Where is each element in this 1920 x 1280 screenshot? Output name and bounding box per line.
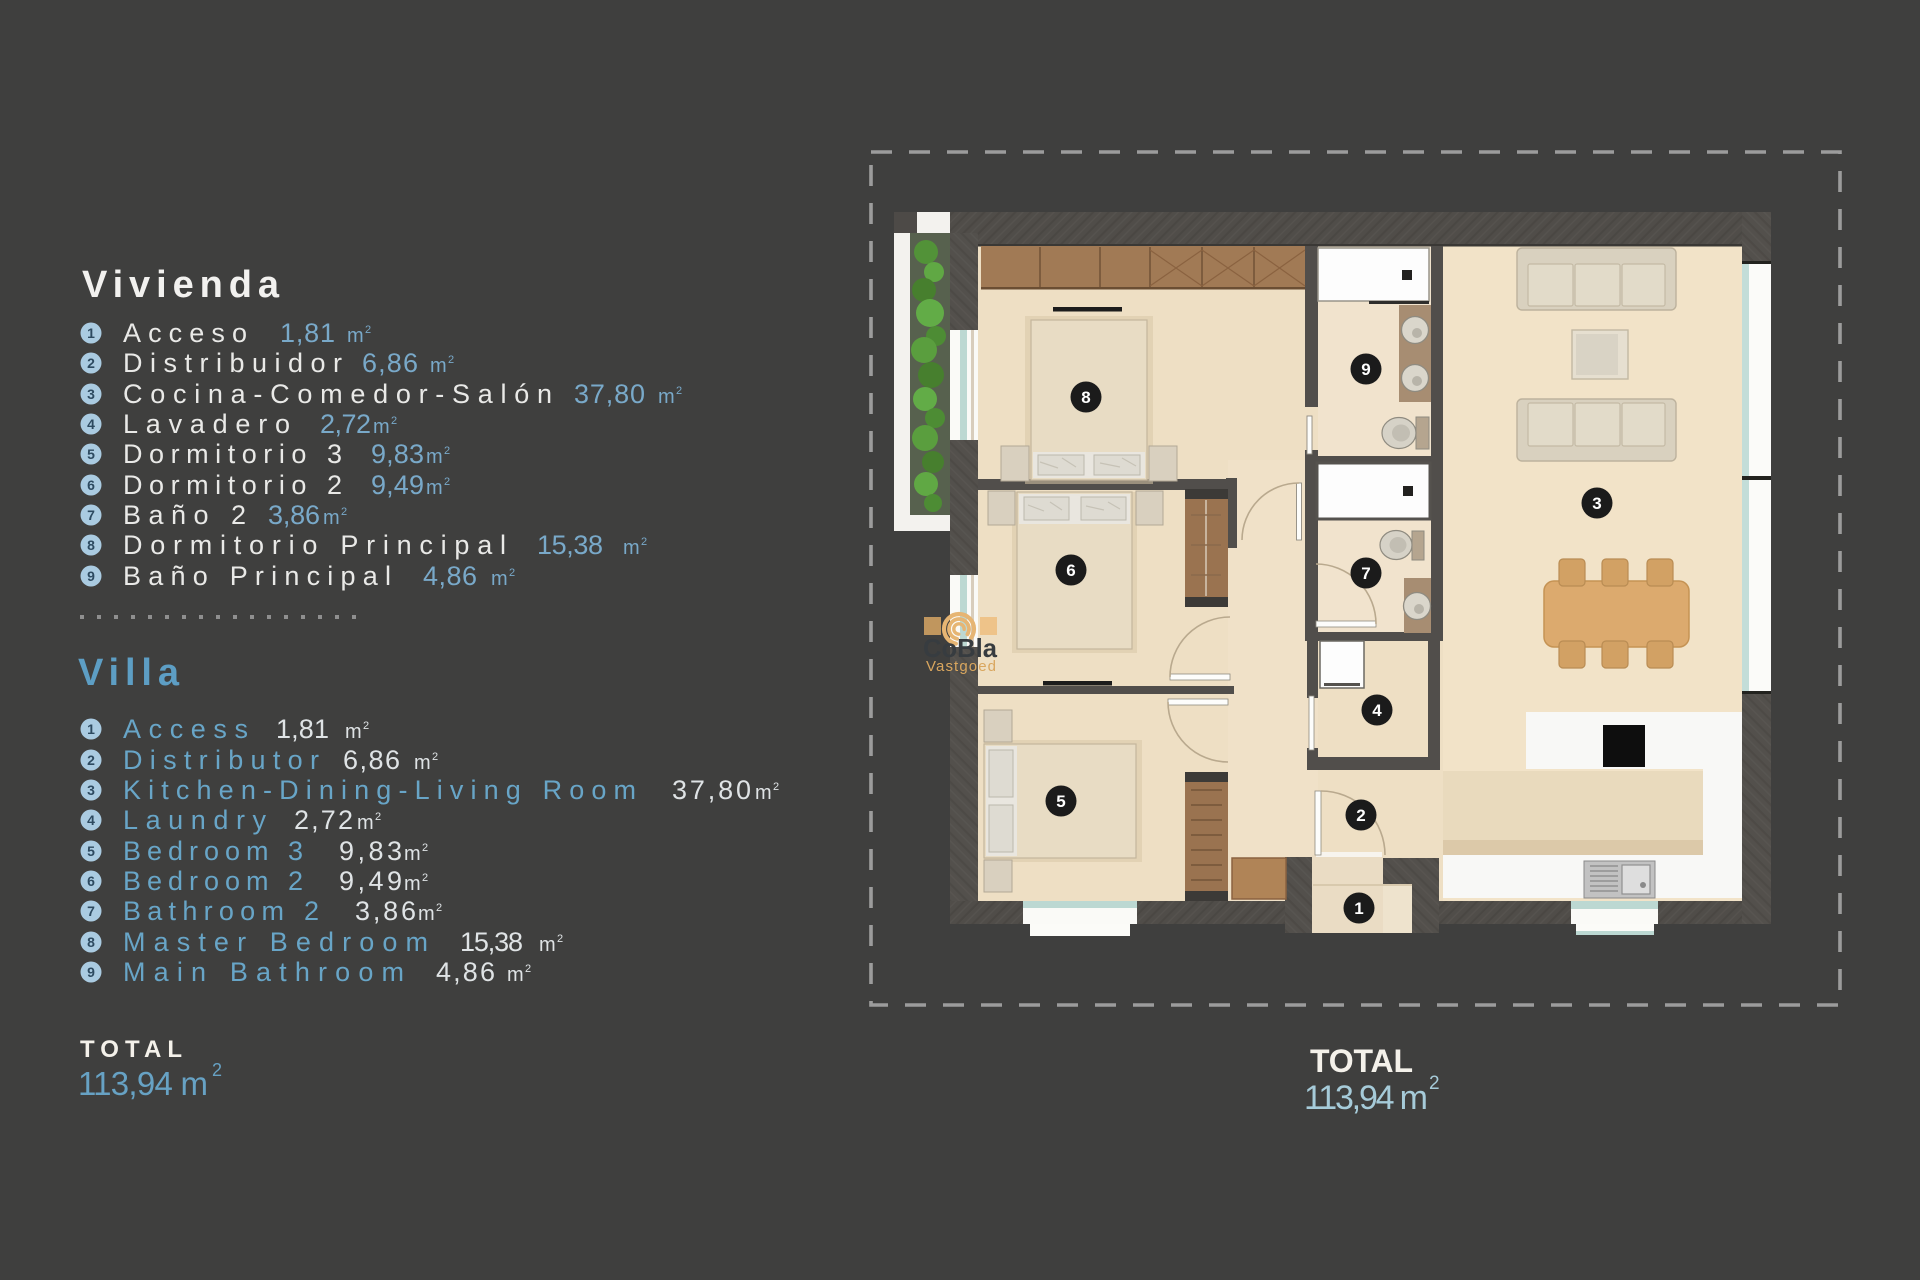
svg-text:2: 2 xyxy=(773,781,779,793)
svg-text:8: 8 xyxy=(87,934,95,950)
svg-text:4: 4 xyxy=(87,812,95,828)
svg-text:2: 2 xyxy=(525,963,531,975)
svg-text:m: m xyxy=(418,903,435,925)
svg-text:4,86: 4,86 xyxy=(436,957,495,987)
svg-text:m: m xyxy=(426,446,443,468)
svg-text:Baño Principal: Baño Principal xyxy=(123,561,391,591)
svg-text:2: 2 xyxy=(436,902,442,914)
svg-text:37,80: 37,80 xyxy=(672,775,751,805)
svg-text:Kitchen-Dining-Living Room: Kitchen-Dining-Living Room xyxy=(123,775,636,805)
svg-text:7: 7 xyxy=(87,507,95,523)
svg-text:2: 2 xyxy=(557,933,563,945)
svg-text:m: m xyxy=(623,537,640,559)
svg-text:2: 2 xyxy=(509,567,515,579)
svg-text:m: m xyxy=(491,568,508,590)
svg-text:m: m xyxy=(430,355,447,377)
svg-text:m: m xyxy=(426,477,443,499)
svg-text:2: 2 xyxy=(1429,1073,1440,1094)
svg-text:2: 2 xyxy=(448,354,454,366)
svg-text:2: 2 xyxy=(641,536,647,548)
svg-text:6,86: 6,86 xyxy=(343,745,400,775)
svg-text:6: 6 xyxy=(87,477,95,493)
svg-text:Bathroom 2: Bathroom 2 xyxy=(123,896,319,926)
svg-text:9,49: 9,49 xyxy=(371,470,424,500)
svg-text:2: 2 xyxy=(375,811,381,823)
svg-text:5: 5 xyxy=(87,843,95,859)
svg-text:TOTAL: TOTAL xyxy=(1310,1043,1422,1079)
svg-text:2: 2 xyxy=(676,385,682,397)
svg-text:9: 9 xyxy=(87,964,95,980)
svg-text:1,81: 1,81 xyxy=(276,714,329,744)
svg-text:Bedroom 3: Bedroom 3 xyxy=(123,836,303,866)
svg-text:1,81: 1,81 xyxy=(280,318,335,348)
svg-text:Main Bathroom: Main Bathroom xyxy=(123,957,404,987)
svg-text:m: m xyxy=(658,386,675,408)
svg-text:5: 5 xyxy=(87,446,95,462)
svg-text:6,86: 6,86 xyxy=(362,348,418,378)
svg-text:m: m xyxy=(373,416,390,438)
svg-text:m: m xyxy=(345,721,362,743)
svg-text:3,86: 3,86 xyxy=(268,500,320,530)
svg-text:4,86: 4,86 xyxy=(423,561,477,591)
svg-text:Vivienda: Vivienda xyxy=(82,264,287,306)
svg-text:15,38: 15,38 xyxy=(537,530,603,560)
svg-text:2: 2 xyxy=(422,872,428,884)
svg-text:15,38: 15,38 xyxy=(460,927,523,957)
svg-text:m: m xyxy=(357,812,374,834)
svg-text:9,83: 9,83 xyxy=(339,836,402,866)
svg-text:9,83: 9,83 xyxy=(371,439,424,469)
svg-text:m: m xyxy=(404,843,421,865)
svg-text:8: 8 xyxy=(87,537,95,553)
svg-text:4: 4 xyxy=(87,416,95,432)
svg-text:m: m xyxy=(347,325,364,347)
svg-text:2: 2 xyxy=(212,1060,222,1080)
svg-text:Villa: Villa xyxy=(78,652,187,694)
svg-text:2,72: 2,72 xyxy=(294,805,353,835)
svg-text:m: m xyxy=(404,873,421,895)
svg-text:9: 9 xyxy=(87,568,95,584)
svg-text:m: m xyxy=(755,782,772,804)
svg-text:TOTAL: TOTAL xyxy=(80,1036,190,1063)
svg-text:7: 7 xyxy=(87,903,95,919)
svg-text:2,72: 2,72 xyxy=(320,409,371,439)
svg-text:1: 1 xyxy=(87,325,95,341)
svg-text:m: m xyxy=(507,964,524,986)
svg-text:2: 2 xyxy=(391,415,397,427)
svg-text:2: 2 xyxy=(444,445,450,457)
svg-text:Bedroom 2: Bedroom 2 xyxy=(123,866,303,896)
svg-text:9,49: 9,49 xyxy=(339,866,402,896)
svg-text:2: 2 xyxy=(363,720,369,732)
svg-text:2: 2 xyxy=(444,476,450,488)
svg-text:37,80: 37,80 xyxy=(574,379,645,409)
svg-text:2: 2 xyxy=(432,751,438,763)
svg-text:1: 1 xyxy=(87,721,95,737)
svg-text:2: 2 xyxy=(422,842,428,854)
svg-text:2: 2 xyxy=(341,506,347,518)
svg-text:6: 6 xyxy=(87,873,95,889)
svg-text:2: 2 xyxy=(365,324,371,336)
svg-text:2: 2 xyxy=(87,752,95,768)
svg-text:m: m xyxy=(414,752,431,774)
svg-text:3,86: 3,86 xyxy=(355,896,416,926)
svg-text:3: 3 xyxy=(87,386,95,402)
svg-text:3: 3 xyxy=(87,782,95,798)
svg-text:113,94 m: 113,94 m xyxy=(1304,1079,1428,1117)
svg-text:2: 2 xyxy=(87,355,95,371)
svg-text:m: m xyxy=(323,507,340,529)
svg-text:m: m xyxy=(539,934,556,956)
svg-text:113,94 m: 113,94 m xyxy=(78,1065,208,1102)
